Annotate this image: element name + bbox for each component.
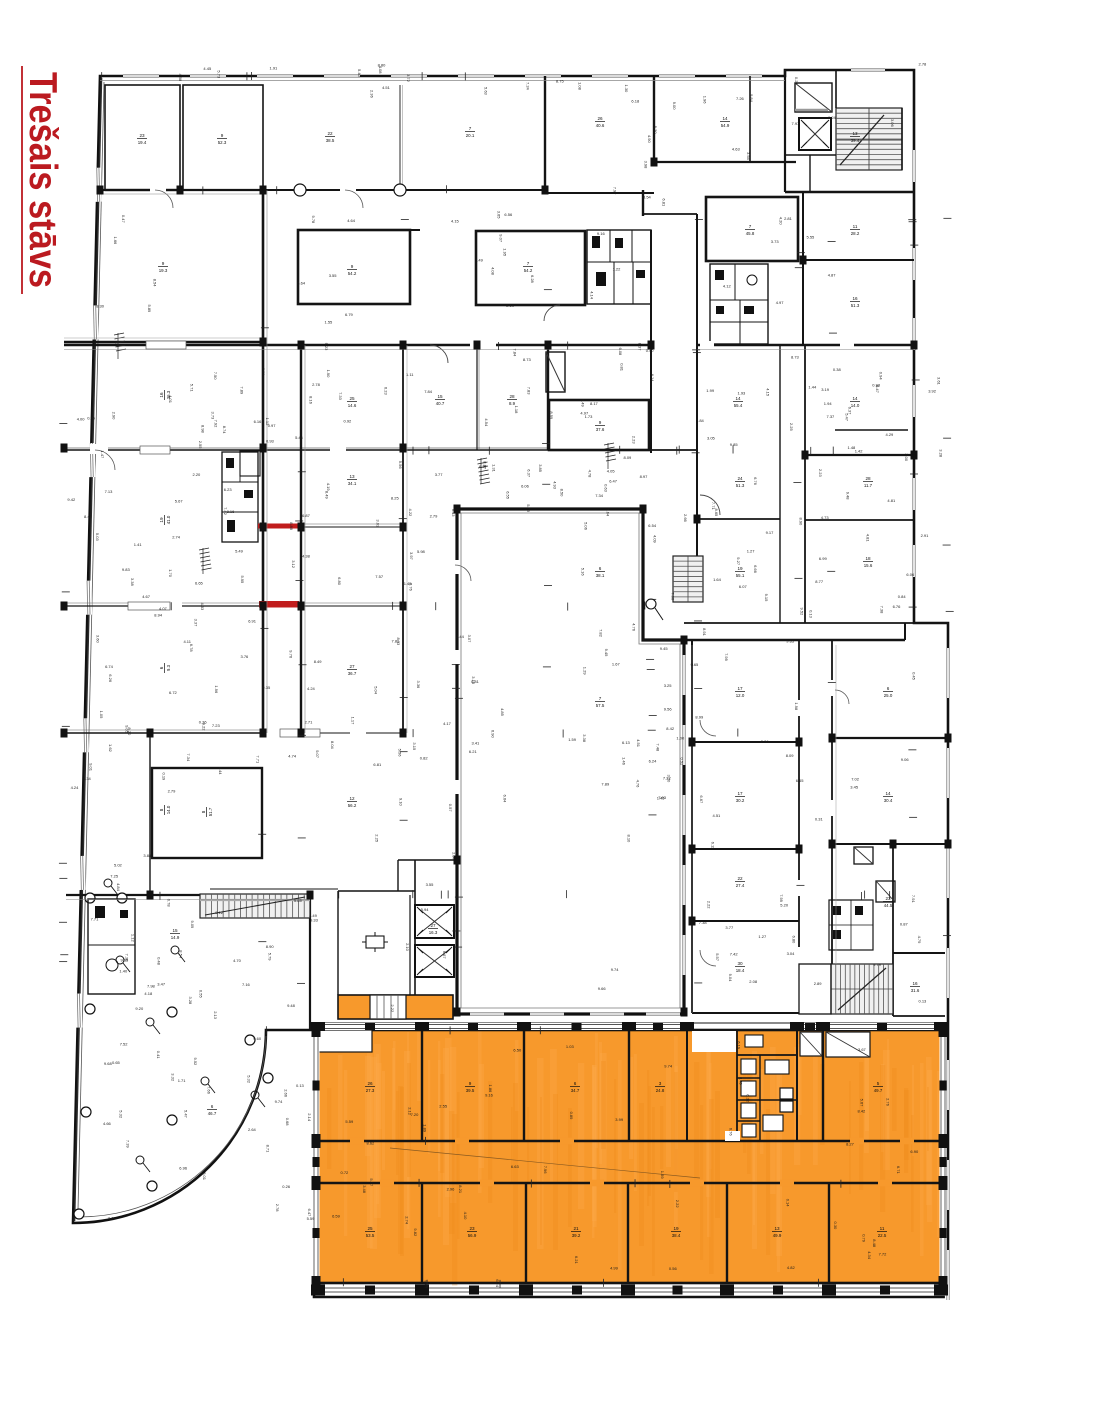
svg-text:4.24: 4.24 — [307, 686, 316, 691]
svg-text:5.85: 5.85 — [294, 898, 303, 903]
svg-text:1.41: 1.41 — [134, 542, 143, 547]
svg-text:6.13: 6.13 — [622, 740, 631, 745]
svg-text:51.3: 51.3 — [736, 483, 745, 488]
svg-text:4.12: 4.12 — [723, 284, 732, 289]
svg-text:54.2: 54.2 — [348, 271, 357, 276]
svg-text:9.15: 9.15 — [764, 594, 769, 603]
svg-text:7.42: 7.42 — [223, 507, 228, 516]
svg-text:5.73: 5.73 — [526, 504, 531, 513]
svg-text:3.47: 3.47 — [157, 981, 166, 986]
svg-text:4.15: 4.15 — [451, 218, 460, 223]
svg-text:6.18: 6.18 — [631, 98, 640, 103]
svg-text:8.91: 8.91 — [702, 628, 707, 637]
svg-text:3.07: 3.07 — [467, 635, 472, 644]
svg-text:5.03: 5.03 — [95, 533, 100, 542]
svg-text:6.65: 6.65 — [796, 778, 805, 783]
svg-text:6.11: 6.11 — [710, 842, 715, 850]
svg-text:6.23: 6.23 — [224, 487, 233, 492]
svg-text:9.07: 9.07 — [498, 234, 503, 243]
svg-text:22.5: 22.5 — [878, 1233, 887, 1238]
svg-text:7: 7 — [749, 224, 752, 229]
svg-text:3.73: 3.73 — [771, 239, 780, 244]
svg-text:0.38: 0.38 — [833, 367, 842, 372]
svg-text:8.10: 8.10 — [626, 835, 631, 844]
svg-text:6.81: 6.81 — [661, 198, 666, 207]
svg-text:55.4: 55.4 — [734, 403, 743, 408]
svg-text:23: 23 — [469, 1226, 475, 1231]
svg-text:2.90: 2.90 — [111, 412, 116, 421]
svg-text:2.23: 2.23 — [631, 436, 636, 445]
svg-text:11: 11 — [853, 224, 858, 229]
svg-text:40.6: 40.6 — [596, 123, 605, 128]
svg-text:9.04: 9.04 — [728, 974, 733, 983]
svg-text:1.22: 1.22 — [613, 266, 622, 271]
svg-text:16: 16 — [159, 392, 164, 398]
svg-text:7.99: 7.99 — [724, 653, 729, 662]
svg-text:14.6: 14.6 — [348, 403, 357, 408]
svg-text:7.84: 7.84 — [512, 348, 517, 357]
svg-text:4.51: 4.51 — [382, 85, 391, 90]
svg-text:34.1: 34.1 — [348, 481, 357, 486]
svg-text:3.60: 3.60 — [96, 635, 101, 644]
svg-text:2.79: 2.79 — [430, 513, 439, 518]
svg-text:14: 14 — [722, 116, 728, 121]
svg-text:0.13: 0.13 — [809, 610, 814, 619]
svg-text:3.99: 3.99 — [615, 1117, 624, 1122]
svg-text:6.08: 6.08 — [618, 348, 623, 357]
svg-text:5.89: 5.89 — [147, 305, 152, 314]
svg-text:1.11: 1.11 — [406, 372, 414, 377]
svg-text:6.59: 6.59 — [332, 1214, 341, 1219]
svg-text:4.08: 4.08 — [491, 267, 496, 276]
svg-text:5.01: 5.01 — [202, 1172, 207, 1181]
svg-text:6.28: 6.28 — [530, 275, 535, 284]
svg-text:6: 6 — [599, 566, 602, 571]
svg-text:2.66: 2.66 — [683, 514, 688, 523]
svg-text:4.20: 4.20 — [779, 217, 784, 226]
svg-text:3.25: 3.25 — [664, 683, 673, 688]
svg-text:2.74: 2.74 — [172, 534, 181, 539]
svg-text:2.23: 2.23 — [818, 469, 823, 478]
svg-text:54.9: 54.9 — [721, 123, 730, 128]
svg-text:16: 16 — [852, 296, 858, 301]
svg-text:55.1: 55.1 — [736, 573, 745, 578]
svg-text:22: 22 — [737, 876, 743, 881]
svg-text:4.01: 4.01 — [168, 395, 173, 404]
svg-text:9.12: 9.12 — [215, 910, 224, 915]
svg-text:1.45: 1.45 — [657, 795, 666, 800]
svg-text:1.30: 1.30 — [624, 85, 629, 94]
svg-text:6: 6 — [887, 686, 890, 691]
svg-text:2.22: 2.22 — [390, 1004, 395, 1013]
svg-text:26: 26 — [597, 116, 603, 121]
svg-text:3.98: 3.98 — [643, 161, 648, 170]
svg-text:7.16: 7.16 — [242, 982, 251, 987]
svg-text:19: 19 — [737, 566, 743, 571]
svg-text:0.89: 0.89 — [569, 1112, 574, 1121]
svg-text:0.21: 0.21 — [794, 77, 799, 86]
svg-text:12: 12 — [349, 796, 355, 801]
svg-text:7.66: 7.66 — [670, 592, 675, 601]
svg-text:0.92: 0.92 — [344, 418, 353, 423]
svg-text:7.98: 7.98 — [147, 984, 156, 989]
svg-text:8.04: 8.04 — [330, 741, 335, 750]
svg-text:9.42: 9.42 — [67, 497, 76, 502]
svg-text:6.91: 6.91 — [248, 619, 257, 624]
svg-text:9.56: 9.56 — [664, 707, 673, 712]
svg-text:7.50: 7.50 — [213, 372, 218, 381]
svg-text:0.65: 0.65 — [112, 1060, 121, 1065]
svg-text:1.89: 1.89 — [422, 1124, 427, 1133]
svg-text:3.61: 3.61 — [937, 377, 942, 386]
svg-text:2.89: 2.89 — [814, 981, 823, 986]
svg-text:23: 23 — [885, 896, 891, 901]
svg-text:1.64: 1.64 — [713, 577, 722, 582]
svg-text:9.83: 9.83 — [122, 567, 131, 572]
svg-text:8.27: 8.27 — [846, 1142, 855, 1147]
svg-text:39.2: 39.2 — [572, 1233, 581, 1238]
svg-text:4.81: 4.81 — [866, 534, 871, 543]
svg-text:5.77: 5.77 — [369, 1178, 374, 1187]
svg-text:9.43: 9.43 — [451, 509, 456, 518]
svg-text:16: 16 — [912, 981, 918, 986]
svg-text:8.63: 8.63 — [423, 1280, 428, 1289]
svg-text:38.5: 38.5 — [326, 138, 335, 143]
svg-text:3.77: 3.77 — [725, 925, 734, 930]
svg-text:4.29: 4.29 — [886, 432, 895, 437]
svg-text:3.38: 3.38 — [130, 578, 135, 587]
svg-text:27: 27 — [349, 664, 355, 669]
svg-text:22: 22 — [327, 131, 333, 136]
svg-text:7.71: 7.71 — [91, 917, 100, 922]
svg-text:9.09: 9.09 — [190, 921, 195, 930]
svg-text:5.79: 5.79 — [268, 953, 273, 962]
svg-text:9.00: 9.00 — [672, 102, 677, 111]
svg-text:4.15: 4.15 — [766, 388, 771, 397]
svg-text:8.42: 8.42 — [858, 1109, 867, 1114]
svg-text:52.3: 52.3 — [218, 140, 227, 145]
svg-text:53.5: 53.5 — [366, 1233, 375, 1238]
svg-text:5.71: 5.71 — [190, 384, 195, 393]
svg-text:4.79: 4.79 — [917, 936, 922, 945]
svg-text:7.84: 7.84 — [424, 389, 433, 394]
svg-text:1.59: 1.59 — [660, 1171, 665, 1180]
svg-text:1.44: 1.44 — [218, 767, 223, 776]
svg-text:6.54: 6.54 — [648, 523, 657, 528]
svg-text:8.30: 8.30 — [96, 303, 105, 308]
svg-text:0.78: 0.78 — [167, 899, 172, 908]
svg-text:5.67: 5.67 — [175, 498, 184, 503]
svg-text:0.82: 0.82 — [420, 756, 429, 761]
svg-text:2.10: 2.10 — [405, 943, 410, 952]
svg-text:4.22: 4.22 — [408, 509, 413, 518]
svg-text:5.02: 5.02 — [114, 862, 123, 867]
svg-text:0.55: 0.55 — [198, 990, 203, 999]
svg-text:1.45: 1.45 — [404, 581, 413, 586]
svg-text:24.8: 24.8 — [656, 1088, 665, 1093]
svg-text:7.97: 7.97 — [792, 121, 801, 126]
svg-text:0.13: 0.13 — [919, 999, 928, 1004]
svg-text:57.5: 57.5 — [596, 703, 605, 708]
svg-text:4.24: 4.24 — [71, 785, 80, 790]
svg-text:3.41: 3.41 — [472, 741, 481, 746]
svg-text:Trešais stāvs: Trešais stāvs — [21, 72, 64, 288]
svg-text:6: 6 — [211, 1104, 214, 1109]
svg-text:9.27: 9.27 — [736, 557, 741, 566]
svg-text:1.86: 1.86 — [488, 1085, 493, 1094]
svg-text:9.78: 9.78 — [311, 216, 316, 225]
svg-text:6.16: 6.16 — [254, 419, 263, 424]
svg-text:6.37: 6.37 — [847, 407, 852, 416]
svg-text:2.07: 2.07 — [451, 852, 456, 861]
svg-text:9: 9 — [351, 264, 354, 269]
svg-text:6.55: 6.55 — [506, 491, 511, 500]
svg-text:11.7: 11.7 — [864, 483, 873, 488]
svg-text:9: 9 — [162, 261, 165, 266]
svg-text:5.47: 5.47 — [845, 413, 850, 422]
svg-text:7.89: 7.89 — [239, 386, 244, 395]
svg-text:7.25: 7.25 — [110, 873, 119, 878]
svg-text:8.65: 8.65 — [714, 509, 719, 518]
svg-text:4.54: 4.54 — [484, 418, 489, 427]
svg-text:5.16: 5.16 — [581, 568, 586, 577]
svg-text:4.51: 4.51 — [636, 739, 641, 748]
svg-text:8.62: 8.62 — [367, 1141, 376, 1146]
svg-text:0.63: 0.63 — [603, 484, 608, 493]
svg-text:19: 19 — [159, 517, 164, 523]
svg-text:3.06: 3.06 — [890, 119, 895, 128]
svg-text:4.05: 4.05 — [607, 469, 616, 474]
svg-text:5.32: 5.32 — [247, 1075, 252, 1084]
svg-text:6.23: 6.23 — [384, 387, 389, 396]
svg-text:4.76: 4.76 — [636, 780, 641, 789]
svg-text:1.93: 1.93 — [738, 391, 747, 396]
svg-text:6.74: 6.74 — [105, 664, 114, 669]
svg-text:1.48: 1.48 — [848, 445, 857, 450]
svg-text:8.33: 8.33 — [396, 638, 401, 647]
svg-text:7.72: 7.72 — [879, 1251, 888, 1256]
svg-text:9.76: 9.76 — [288, 650, 293, 659]
svg-text:5.56: 5.56 — [398, 749, 403, 758]
svg-text:0.56: 0.56 — [669, 1266, 678, 1271]
svg-text:7.24: 7.24 — [526, 82, 531, 91]
svg-text:6.64: 6.64 — [297, 280, 306, 285]
svg-text:9.84: 9.84 — [749, 94, 754, 103]
svg-text:0.14: 0.14 — [785, 1199, 790, 1208]
svg-text:9: 9 — [599, 420, 602, 425]
svg-text:8.77: 8.77 — [815, 579, 824, 584]
svg-text:5.46: 5.46 — [295, 435, 304, 440]
svg-text:7.22: 7.22 — [663, 776, 672, 781]
svg-text:1.96: 1.96 — [214, 685, 219, 694]
svg-text:3.36: 3.36 — [416, 681, 421, 690]
svg-text:2.44: 2.44 — [456, 634, 465, 639]
svg-text:7.48: 7.48 — [655, 743, 660, 752]
svg-text:4.00: 4.00 — [77, 417, 86, 422]
svg-text:1.70: 1.70 — [168, 569, 173, 578]
svg-text:1.95: 1.95 — [502, 248, 507, 257]
svg-text:3.00: 3.00 — [904, 453, 909, 462]
svg-text:9.23: 9.23 — [324, 343, 329, 352]
svg-text:11: 11 — [880, 1226, 885, 1231]
svg-text:0.81: 0.81 — [619, 363, 624, 372]
svg-text:9.60: 9.60 — [253, 1036, 262, 1041]
svg-text:4.66: 4.66 — [103, 1121, 112, 1126]
svg-text:4.84: 4.84 — [116, 883, 121, 892]
svg-text:5.40: 5.40 — [357, 69, 362, 78]
svg-text:1.62: 1.62 — [108, 744, 113, 753]
svg-text:49.7: 49.7 — [874, 1088, 883, 1093]
svg-text:8.25: 8.25 — [391, 496, 400, 501]
svg-text:3.54: 3.54 — [746, 152, 751, 161]
svg-text:7.71: 7.71 — [255, 755, 260, 764]
svg-text:1.29: 1.29 — [583, 667, 588, 676]
svg-text:4.14: 4.14 — [590, 291, 595, 300]
svg-text:8.09: 8.09 — [786, 753, 795, 758]
svg-text:6.50: 6.50 — [513, 1048, 522, 1053]
svg-text:1.27: 1.27 — [758, 934, 767, 939]
svg-text:0.24: 0.24 — [828, 115, 837, 120]
svg-text:6.78: 6.78 — [189, 644, 194, 653]
svg-text:3.05: 3.05 — [707, 435, 716, 440]
svg-text:0.84: 0.84 — [898, 594, 907, 599]
svg-text:7.97: 7.97 — [613, 187, 618, 196]
svg-text:4.64: 4.64 — [347, 218, 356, 223]
svg-text:2.55: 2.55 — [439, 1104, 448, 1109]
svg-text:0.57: 0.57 — [448, 804, 453, 813]
svg-text:9.74: 9.74 — [664, 1063, 673, 1068]
svg-text:28: 28 — [865, 476, 871, 481]
svg-text:4.17: 4.17 — [443, 721, 452, 726]
svg-text:37.6: 37.6 — [596, 427, 605, 432]
svg-text:8.74: 8.74 — [222, 426, 227, 435]
svg-text:27: 27 — [430, 923, 436, 928]
svg-text:6.90: 6.90 — [910, 1149, 919, 1154]
svg-text:30.4: 30.4 — [884, 798, 893, 803]
svg-text:7.96: 7.96 — [543, 1166, 548, 1175]
svg-text:0.40: 0.40 — [646, 348, 655, 353]
svg-text:34.7: 34.7 — [571, 1088, 580, 1093]
svg-text:4.73: 4.73 — [821, 515, 830, 520]
svg-text:5.94: 5.94 — [421, 907, 430, 912]
svg-text:27.4: 27.4 — [736, 883, 745, 888]
svg-text:8.97: 8.97 — [640, 474, 649, 479]
svg-text:7.42: 7.42 — [730, 951, 739, 956]
svg-text:38.1: 38.1 — [596, 573, 605, 578]
svg-text:8.48: 8.48 — [872, 1239, 877, 1248]
svg-text:9.35: 9.35 — [262, 685, 271, 690]
svg-text:1.47: 1.47 — [100, 450, 105, 459]
svg-text:2.08: 2.08 — [749, 979, 758, 984]
svg-text:7.57: 7.57 — [375, 574, 384, 579]
svg-text:13: 13 — [852, 131, 858, 136]
svg-text:3.92: 3.92 — [928, 389, 937, 394]
svg-text:3.04: 3.04 — [787, 951, 796, 956]
svg-text:3.38: 3.38 — [582, 734, 587, 743]
svg-text:0.87: 0.87 — [900, 922, 909, 927]
svg-text:45.8: 45.8 — [746, 231, 755, 236]
svg-text:0.68: 0.68 — [285, 1118, 290, 1127]
svg-text:7.82: 7.82 — [598, 629, 603, 638]
svg-text:9.16: 9.16 — [485, 1092, 494, 1097]
svg-text:1.98: 1.98 — [794, 702, 799, 711]
svg-text:6.64: 6.64 — [503, 795, 508, 804]
svg-text:2.71: 2.71 — [305, 720, 314, 725]
svg-text:5.67: 5.67 — [860, 1099, 865, 1108]
svg-text:0.41: 0.41 — [156, 1051, 161, 1060]
svg-text:4.82: 4.82 — [787, 1265, 796, 1270]
svg-text:0.98: 0.98 — [872, 383, 881, 388]
svg-text:8.73: 8.73 — [791, 354, 800, 359]
svg-text:2.76: 2.76 — [886, 1098, 891, 1107]
svg-text:4.99: 4.99 — [610, 1266, 619, 1271]
svg-text:7.33: 7.33 — [338, 392, 343, 401]
svg-text:1.27: 1.27 — [747, 549, 756, 554]
svg-text:38.4: 38.4 — [672, 1233, 681, 1238]
svg-text:3.03: 3.03 — [376, 519, 381, 528]
svg-text:8.09: 8.09 — [624, 455, 633, 460]
svg-text:23: 23 — [139, 133, 145, 138]
svg-text:39.4: 39.4 — [851, 138, 860, 143]
svg-text:4.38: 4.38 — [302, 554, 311, 559]
svg-text:9: 9 — [221, 133, 224, 138]
svg-text:8.49: 8.49 — [314, 659, 323, 664]
svg-text:8.17: 8.17 — [590, 401, 599, 406]
svg-text:6.24: 6.24 — [495, 1279, 500, 1288]
svg-text:6: 6 — [159, 666, 164, 669]
svg-text:6.99: 6.99 — [819, 556, 828, 561]
svg-text:2.22: 2.22 — [675, 1200, 680, 1209]
svg-text:9.10: 9.10 — [399, 798, 404, 807]
svg-text:2.78: 2.78 — [919, 61, 928, 66]
svg-text:14: 14 — [885, 791, 891, 796]
svg-text:9.3: 9.3 — [166, 664, 171, 671]
svg-text:51.3: 51.3 — [851, 303, 860, 308]
svg-text:16.3: 16.3 — [429, 930, 438, 935]
svg-text:2.81: 2.81 — [784, 216, 793, 221]
svg-text:13: 13 — [774, 1226, 780, 1231]
svg-text:2.14: 2.14 — [307, 1113, 312, 1122]
svg-text:9.48: 9.48 — [846, 492, 851, 501]
svg-text:0.45: 0.45 — [912, 672, 917, 681]
svg-text:56.9: 56.9 — [468, 1233, 477, 1238]
svg-text:7.91: 7.91 — [911, 895, 916, 904]
svg-text:54.2: 54.2 — [524, 268, 533, 273]
svg-text:1.12: 1.12 — [130, 934, 135, 943]
svg-text:6.21: 6.21 — [469, 749, 478, 754]
svg-text:7: 7 — [527, 261, 530, 266]
svg-text:8: 8 — [159, 808, 164, 811]
svg-text:6.80: 6.80 — [337, 577, 342, 586]
svg-text:7.37: 7.37 — [827, 414, 836, 419]
svg-text:51.7: 51.7 — [208, 807, 213, 816]
svg-text:8.49: 8.49 — [739, 1077, 744, 1086]
svg-text:1.00: 1.00 — [676, 736, 685, 741]
svg-text:1.08: 1.08 — [578, 82, 583, 91]
svg-text:3.49: 3.49 — [475, 258, 484, 263]
svg-text:2.64: 2.64 — [248, 1127, 257, 1132]
svg-text:3.73: 3.73 — [211, 412, 216, 421]
svg-text:21: 21 — [573, 1226, 579, 1231]
svg-text:8.48: 8.48 — [84, 514, 93, 519]
svg-text:30.2: 30.2 — [736, 798, 745, 803]
svg-text:1.05: 1.05 — [99, 711, 104, 720]
svg-text:3.28: 3.28 — [938, 449, 943, 458]
svg-text:2.55: 2.55 — [198, 441, 203, 450]
svg-text:8.75: 8.75 — [556, 79, 565, 84]
svg-text:1.12: 1.12 — [265, 418, 270, 427]
svg-text:4.18: 4.18 — [144, 991, 153, 996]
